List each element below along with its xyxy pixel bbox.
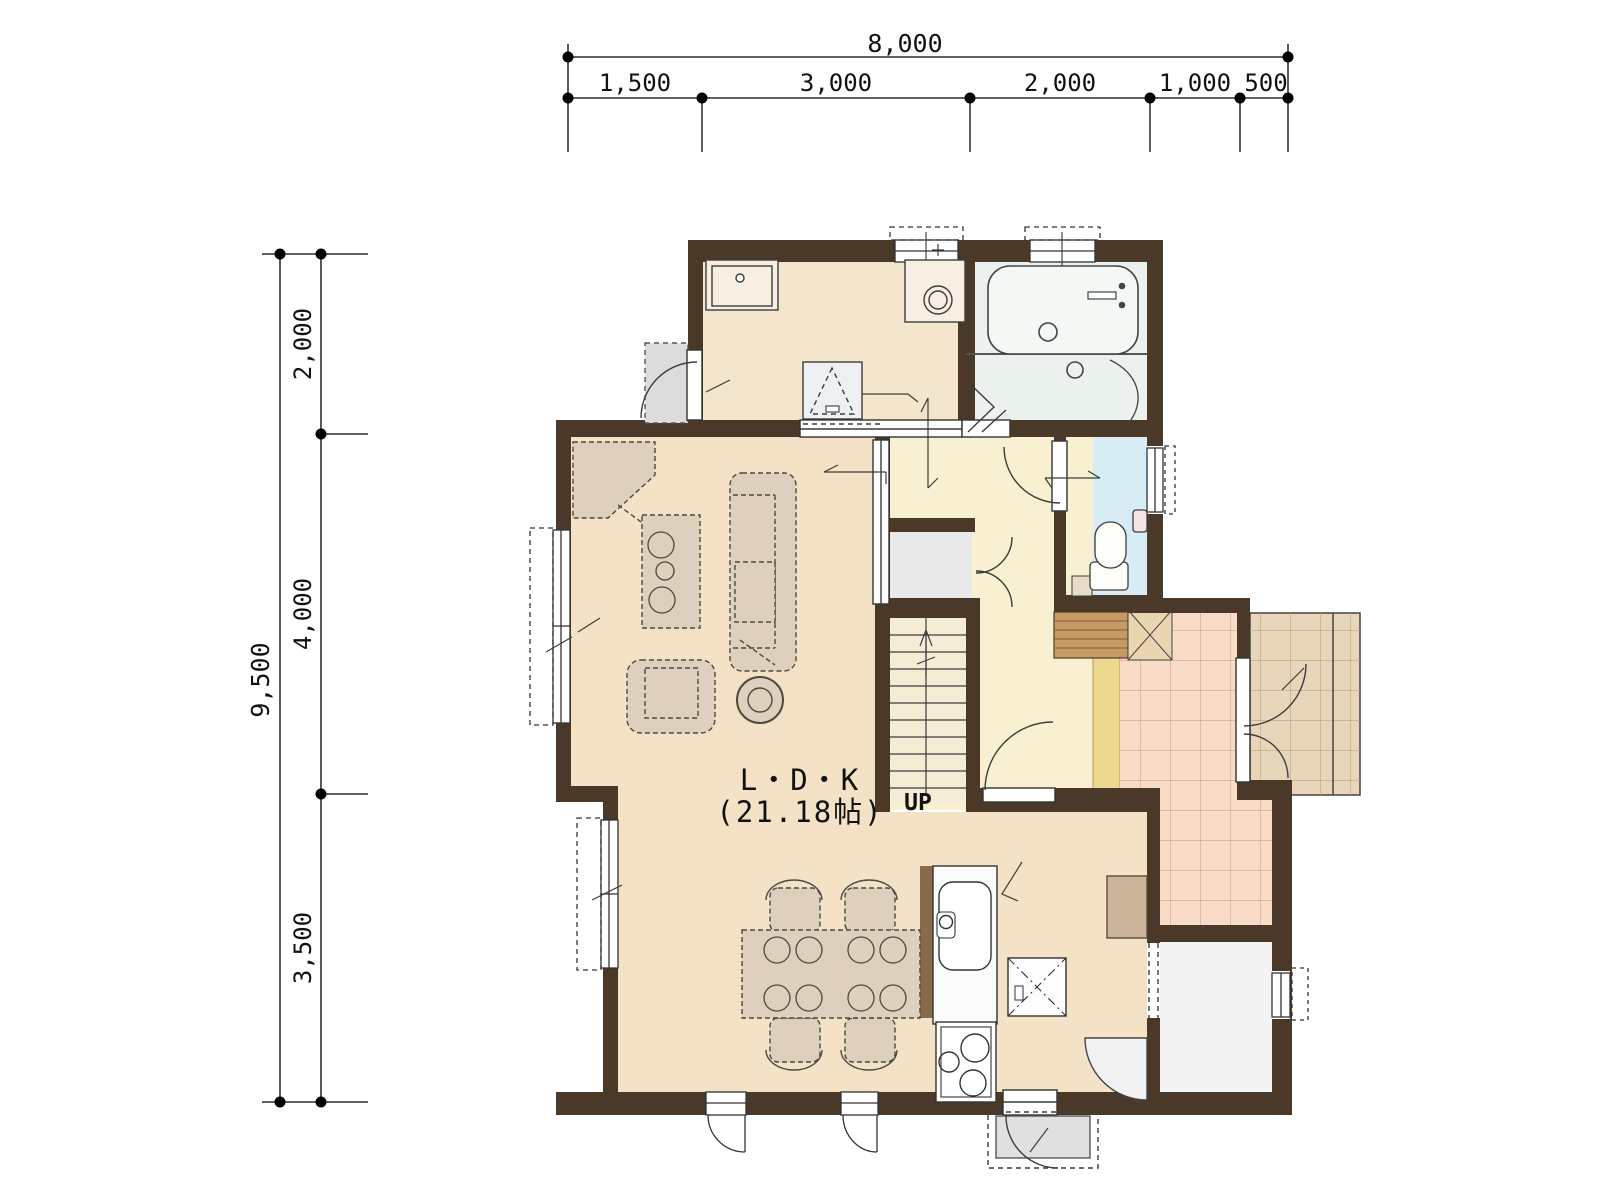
stairs-floor	[882, 612, 972, 802]
dining-chair-2	[845, 888, 895, 932]
toilet-door-leaf	[1052, 441, 1067, 511]
utility-door-leaf	[687, 350, 702, 420]
entrance-door-leaf	[1236, 658, 1250, 782]
floor-plan-drawing: 8,000 1,500 3,000 2,000 1,000 500 9,500 …	[0, 0, 1600, 1200]
toilet-window-shutter	[1165, 446, 1175, 514]
wall-bottom	[556, 1092, 1292, 1115]
armchair-seat	[645, 668, 698, 718]
utility-door-landing	[645, 343, 688, 423]
toilet-hand-sink	[1133, 510, 1147, 532]
floor-plan-page: 8,000 1,500 3,000 2,000 1,000 500 9,500 …	[0, 0, 1600, 1200]
wall-stairs-right	[966, 598, 980, 812]
top-dimension: 8,000 1,500 3,000 2,000 1,000 500	[563, 29, 1294, 152]
ottoman	[737, 677, 783, 723]
hall-edge-strip	[1093, 658, 1120, 794]
bottom-window-1-swing	[708, 1115, 745, 1152]
kitchen-faucet	[940, 916, 953, 929]
living-window-left-shutter	[530, 528, 553, 725]
wall-entrance-corner	[1237, 780, 1290, 800]
refrigerator-handle	[1015, 986, 1023, 1000]
dim-left-seg-2: 3,500	[289, 912, 317, 984]
dim-left-seg-0: 2,000	[289, 308, 317, 380]
dim-top-seg-4: 500	[1244, 69, 1287, 97]
ldk-area-label: (21.18帖)	[716, 795, 883, 829]
utility-sink-drain	[736, 274, 744, 282]
wall-kitchen-half	[920, 866, 933, 1018]
genkan-step-boards	[1054, 612, 1128, 658]
entrance-area	[1054, 610, 1172, 660]
hall-door-leaf	[983, 788, 1055, 802]
dim-top-seg-3: 1,000	[1159, 69, 1231, 97]
left-dimension: 9,500 2,000 4,000 3,500	[246, 249, 368, 1108]
toilet-corner-shelf	[1072, 576, 1092, 596]
dim-top-seg-2: 2,000	[1024, 69, 1096, 97]
wall-right-lower	[1272, 780, 1292, 1115]
bathtub-faucet	[1088, 292, 1116, 299]
dim-left-seg-1: 4,000	[289, 578, 317, 650]
wall-closet-top	[875, 518, 975, 532]
wall-genkan-storage	[1147, 925, 1276, 942]
wall-toilet-bottom	[1054, 595, 1147, 612]
stove	[936, 1022, 996, 1102]
porch-grid	[1250, 613, 1360, 795]
washing-machine-panel	[826, 406, 839, 412]
toilet-bowl	[1095, 522, 1126, 568]
storage-window-shutter	[1292, 968, 1308, 1020]
dim-top-seg-0: 1,500	[599, 69, 671, 97]
dining-chair-1	[770, 888, 820, 932]
utility-sink	[712, 266, 772, 306]
coffee-table	[642, 515, 700, 628]
wall-closet-stairs	[875, 598, 980, 618]
dim-left-total: 9,500	[246, 642, 275, 717]
dim-top-total: 8,000	[867, 29, 942, 58]
dining-table	[742, 930, 920, 1018]
bottom-window-2-swing	[843, 1115, 877, 1152]
storage-floor	[1160, 940, 1272, 1095]
stairs-up-label: UP	[904, 790, 932, 816]
bathtub	[988, 266, 1138, 354]
wall-genkan-left	[1147, 788, 1160, 940]
dining-chair-4	[845, 1018, 895, 1062]
dim-top-seg-1: 3,000	[800, 69, 872, 97]
living-window-lower-shutter	[577, 818, 601, 970]
dining-chair-3	[770, 1018, 820, 1062]
tall-cabinet	[1107, 876, 1147, 938]
ldk-label: L・D・K	[740, 763, 860, 797]
sofa-cushion	[735, 562, 775, 622]
